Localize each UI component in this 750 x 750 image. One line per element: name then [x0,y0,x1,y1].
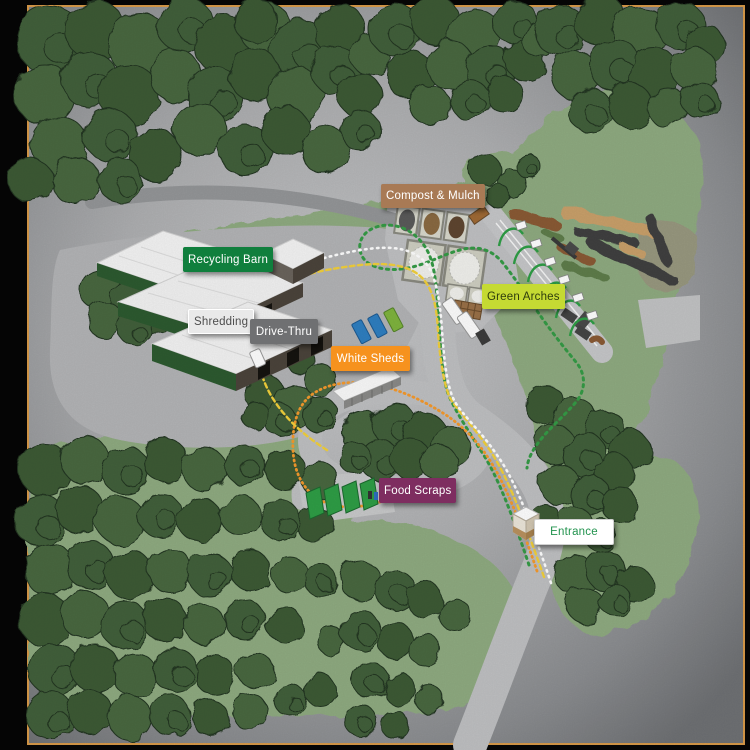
label-text: Food Scraps [384,485,451,497]
label-recycling-barn[interactable]: Recycling Barn [183,247,273,272]
label-compost-mulch[interactable]: Compost & Mulch [381,184,485,208]
label-text: Compost & Mulch [386,190,480,202]
texture-overlay [28,6,744,744]
label-text: Shredding [194,316,248,328]
label-text: Drive-Thru [256,326,312,338]
label-drive-thru[interactable]: Drive-Thru [250,319,318,344]
label-shredding[interactable]: Shredding [188,309,254,334]
label-text: Green Arches [487,291,560,303]
label-entrance[interactable]: Entrance [534,519,614,545]
label-text: Entrance [550,526,598,538]
facility-map: Compost & Mulch Recycling Barn Shredding… [0,0,750,750]
label-food-scraps[interactable]: Food Scraps [379,478,456,503]
label-green-arches[interactable]: Green Arches [482,284,565,309]
label-white-sheds[interactable]: White Sheds [331,346,410,371]
label-text: White Sheds [337,353,404,365]
label-text: Recycling Barn [188,254,268,266]
map-illustration [0,0,750,750]
